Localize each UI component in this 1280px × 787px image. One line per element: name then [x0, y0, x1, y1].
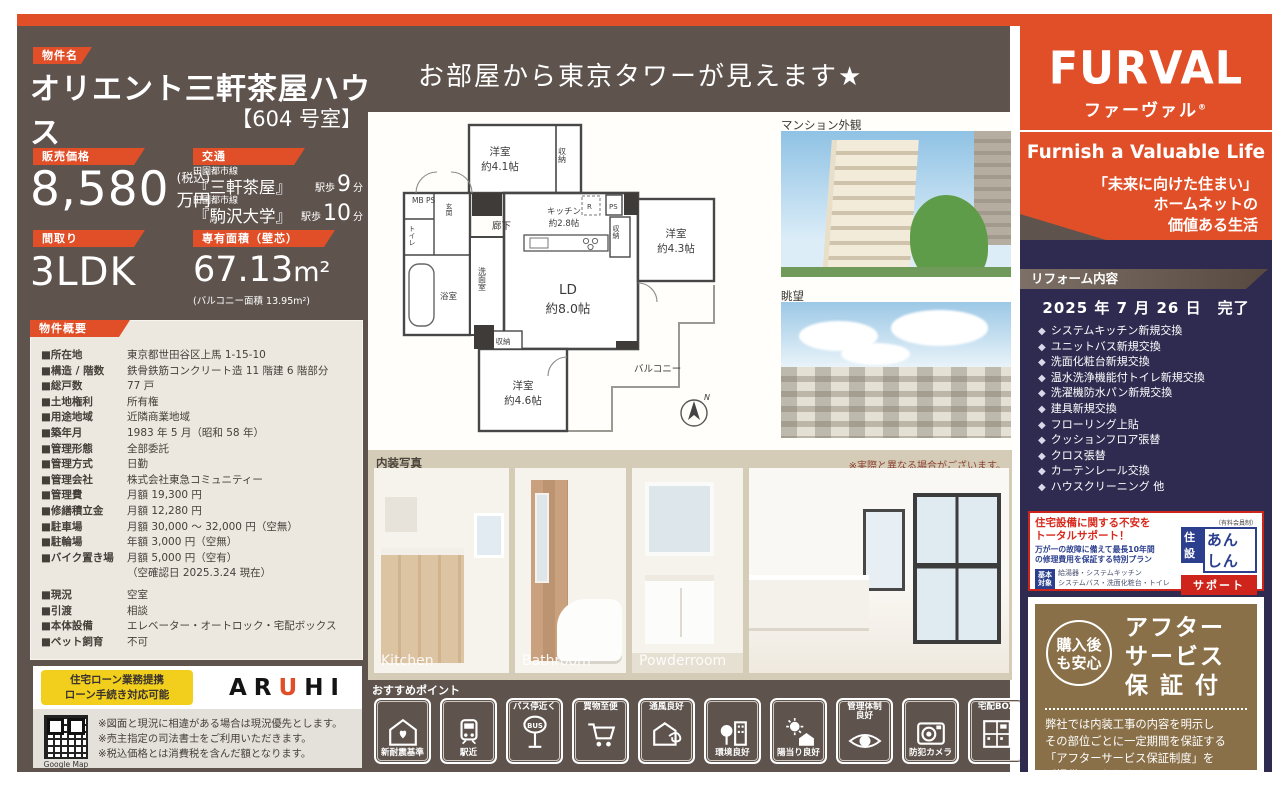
price-value: 8,580	[30, 166, 170, 213]
photo-caption: Bathroom	[522, 653, 591, 669]
svg-text:PS: PS	[609, 203, 618, 211]
furval-logo: FURVAL	[1020, 43, 1272, 96]
point-tile-earthquake: 新耐震基準	[374, 698, 431, 764]
qr-block: Google Map	[42, 715, 90, 768]
point-tile-environment: 環境良好	[704, 698, 761, 764]
table-row: ■築年月1983 年 5 月（昭和 58 年）	[41, 426, 354, 442]
list-item: ◆クロス張替	[1038, 449, 1205, 465]
reform-date: 2025 年 7 月 26 日 完了	[1020, 297, 1272, 318]
point-tile-camera: 防犯カメラ	[902, 698, 959, 764]
anshin-support-banner: 住宅設備に関する不安をトータルサポート！ 万が一の故障に備えて最長10年間の修理…	[1028, 511, 1264, 591]
after-body: 弊社では内装工事の内容を明示し その部位ごとに一定期間を保証する 「アフターサー…	[1045, 717, 1247, 785]
photo-caption: Kitchen	[381, 653, 434, 669]
eye-icon	[848, 728, 882, 754]
dotted-divider	[1045, 708, 1247, 710]
table-row: ■現況空室	[41, 588, 354, 604]
loan-badge: 住宅ローン業務提携 ローン手続き対応可能	[41, 670, 193, 704]
photo-caption: Powderroom	[639, 653, 726, 669]
exterior-photo	[781, 131, 1011, 277]
svg-text:収納: 収納	[496, 336, 511, 346]
building-tower	[822, 140, 919, 277]
loan-notes-box: 住宅ローン業務提携 ローン手続き対応可能 ARUHI Google Map ※図…	[33, 666, 362, 768]
table-row: ■引渡相談	[41, 604, 354, 620]
list-item: ◆温水洗浄機能付トイレ新規交換	[1038, 371, 1205, 387]
point-tile-shopping: 買物至便	[572, 698, 629, 764]
point-tile-airflow: 通風良好	[638, 698, 695, 764]
table-row: ■駐輪場年額 3,000 円（空無）	[41, 535, 354, 551]
walk-time: 駅歩10分	[301, 201, 363, 226]
access-route-2: 田園都市線 『駒沢大学』 駅歩10分	[193, 196, 363, 227]
security-camera-icon	[915, 717, 947, 749]
note-line: ※図面と現況に相違がある場合は現況優先とします。	[98, 717, 342, 732]
list-item: ◆洗面化粧台新規交換	[1038, 355, 1205, 371]
svg-text:収納: 収納	[612, 225, 620, 240]
table-row: ■土地権利所有権	[41, 395, 354, 411]
anshin-logo: （有料会員制） 住設 あんしん サポート	[1181, 518, 1257, 595]
brand-column: FURVAL ファーヴァル® Furnish a Valuable Life 「…	[1020, 14, 1272, 772]
svg-text:洋室: 洋室	[666, 227, 687, 240]
table-row: ■構造 / 階数鉄骨鉄筋コンクリート造 11 階建 6 階部分	[41, 364, 354, 380]
after-service-box: 購入後も安心 アフター サービス 保 証 付 弊社では内装工事の内容を明示し そ…	[1028, 597, 1264, 777]
wind-house-icon	[651, 718, 683, 750]
brand-message: 「未来に向けた住まい」 ホームネットの 価値ある生活	[1093, 174, 1258, 235]
table-row: ■駐車場月額 30,000 ～ 32,000 円（空無）	[41, 520, 354, 536]
point-tile-deliverybox: 宅配BOX	[968, 698, 1025, 764]
bathroom-photo: Bathroom	[515, 468, 626, 673]
property-overview-box: ■所在地東京都世田谷区上馬 1-15-10 ■構造 / 階数鉄骨鉄筋コンクリート…	[30, 320, 363, 660]
svg-text:トイレ: トイレ	[408, 225, 416, 246]
svg-text:BUS: BUS	[527, 722, 543, 730]
access-tag: 交通	[193, 148, 305, 165]
living-photo	[749, 468, 1009, 673]
point-tile-station: 駅近	[440, 698, 497, 764]
area-tag: 専有面積（壁芯）	[193, 230, 335, 247]
headline: お部屋から東京タワーが見えます★	[418, 56, 863, 93]
flyer-page: 物件名 オリエント三軒茶屋ハウス 【604 号室】 販売価格 8,580 (税込…	[0, 0, 1280, 787]
disclaimer-notes: ※図面と現況に相違がある場合は現況優先とします。 ※売主指定の司法書士をご利用い…	[98, 717, 342, 768]
table-row: ■修繕積立金月額 12,280 円	[41, 504, 354, 520]
list-item: ◆建具新規交換	[1038, 402, 1205, 418]
note-line: ※税込価格とは消費税を含んだ額となります。	[98, 747, 342, 762]
notes-area: Google Map ※図面と現況に相違がある場合は現況優先とします。 ※売主指…	[33, 709, 362, 768]
table-row: ■ペット飼育不可	[41, 635, 354, 651]
train-icon	[453, 717, 485, 749]
list-item: ◆洗濯機防水パン新規交換	[1038, 386, 1205, 402]
svg-text:N: N	[704, 393, 710, 402]
walk-time: 駅歩9分	[315, 172, 363, 197]
layout-tag: 間取り	[33, 230, 145, 247]
table-row: ■管理方式日勤	[41, 457, 354, 473]
svg-text:R: R	[587, 203, 592, 211]
svg-text:廊下: 廊下	[492, 220, 511, 232]
area-value: 67.13m²	[193, 250, 330, 290]
svg-text:約4.3帖: 約4.3帖	[657, 242, 695, 255]
svg-text:MB PS: MB PS	[412, 196, 436, 205]
sun-house-icon	[783, 717, 815, 749]
reform-list: ◆システムキッチン新規交換 ◆ユニットバス新規交換 ◆洗面化粧台新規交換 ◆温水…	[1038, 324, 1205, 496]
svg-text:約4.1帖: 約4.1帖	[481, 160, 519, 173]
bus-stop-icon: BUS	[519, 714, 551, 750]
overview-tag: 物件概要	[30, 320, 130, 337]
list-item: ◆フローリング上貼	[1038, 418, 1205, 434]
cart-icon	[585, 718, 617, 750]
svg-text:浴室: 浴室	[440, 291, 458, 302]
point-tile-bus: BUS バス停近く	[506, 698, 563, 764]
list-item: ◆システムキッチン新規交換	[1038, 324, 1205, 340]
balcony-area-note: (バルコニー面積 13.95m²)	[193, 293, 310, 307]
svg-text:玄関: 玄関	[444, 202, 452, 218]
layout-value: 3LDK	[30, 250, 136, 295]
furval-kana: ファーヴァル®	[1020, 96, 1272, 121]
after-title: アフター サービス 保 証 付	[1125, 614, 1247, 700]
view-photo	[781, 302, 1011, 438]
svg-text:約2.8帖: 約2.8帖	[549, 218, 580, 229]
floorplan-drawing: バルコニー	[376, 117, 772, 445]
overview-rows: ■所在地東京都世田谷区上馬 1-15-10 ■構造 / 階数鉄骨鉄筋コンクリート…	[31, 321, 362, 650]
table-row: ■用途地域近隣商業地域	[41, 410, 354, 426]
price: 8,580 (税込) 万円	[30, 166, 211, 213]
brand-header: FURVAL ファーヴァル® Furnish a Valuable Life 「…	[1020, 14, 1272, 240]
point-tile-sunlight: 陽当り良好	[770, 698, 827, 764]
svg-text:洋室: 洋室	[513, 379, 534, 392]
qr-caption: Google Map	[42, 760, 90, 769]
after-badge: 購入後も安心	[1046, 620, 1112, 686]
table-row: ■管理会社株式会社東急コミュニティー	[41, 473, 354, 489]
svg-text:収納: 収納	[558, 146, 567, 164]
divider	[1020, 130, 1272, 132]
points-title: おすすめポイント	[372, 682, 460, 698]
svg-text:洋室: 洋室	[490, 145, 511, 158]
anshin-chip: 基本対象	[1035, 569, 1055, 589]
access-route-1: 田園都市線 『三軒茶屋』 駅歩9分	[193, 167, 363, 198]
qr-code	[44, 715, 88, 759]
table-row: ■総戸数77 戸	[41, 379, 354, 395]
note-line: ※売主指定の司法書士をご利用いただきます。	[98, 732, 342, 747]
list-item: ◆ユニットバス新規交換	[1038, 340, 1205, 356]
svg-text:キッチン: キッチン	[547, 207, 581, 217]
reform-tag: リフォーム内容	[1020, 269, 1268, 289]
svg-text:洗面室: 洗面室	[478, 266, 487, 291]
table-row: ■本体設備エレベーター・オートロック・宅配ボックス	[41, 619, 354, 635]
table-row: ■管理形態全部委託	[41, 442, 354, 458]
tree-building-icon	[717, 717, 749, 749]
list-item: ◆ハウスクリーニング 他	[1038, 480, 1205, 496]
kitchen-photo: Kitchen	[374, 468, 509, 673]
table-row: （空確認日 2025.3.24 現在）	[41, 566, 354, 582]
list-item: ◆クッションフロア張替	[1038, 433, 1205, 449]
point-tile-management: 管理体制良好	[836, 698, 893, 764]
loan-row: 住宅ローン業務提携 ローン手続き対応可能 ARUHI	[33, 666, 362, 709]
svg-text:バルコニー: バルコニー	[634, 364, 681, 375]
svg-text:LD: LD	[559, 282, 577, 298]
cityscape	[781, 367, 1011, 438]
table-row: ■管理費月額 19,300 円	[41, 488, 354, 504]
room-number: 【604 号室】	[30, 103, 362, 133]
station-name: 『駒沢大学』	[193, 207, 292, 228]
interior-photos-strip: 内装写真 ※実際と異なる場合がございます。 Kitchen Bathroom P…	[368, 450, 1012, 680]
aruhi-logo: ARUHI	[229, 675, 346, 701]
locker-box-icon	[981, 718, 1013, 750]
corner-wedge	[1020, 214, 1106, 240]
brand-slogan: Furnish a Valuable Life	[1020, 142, 1272, 163]
points-row: 新耐震基準 駅近 BUS バス停近く 買物至便 通風良好 環境良好 陽当り良好	[374, 698, 1025, 764]
powderroom-photo: Powderroom	[632, 468, 743, 673]
table-row: ■所在地東京都世田谷区上馬 1-15-10	[41, 348, 354, 364]
house-heart-icon	[387, 717, 419, 749]
svg-text:約8.0帖: 約8.0帖	[546, 301, 591, 316]
table-row: ■バイク置き場月額 5,000 円（空有）	[41, 551, 354, 567]
svg-text:約4.6帖: 約4.6帖	[504, 394, 542, 407]
list-item: ◆カーテンレール交換	[1038, 464, 1205, 480]
